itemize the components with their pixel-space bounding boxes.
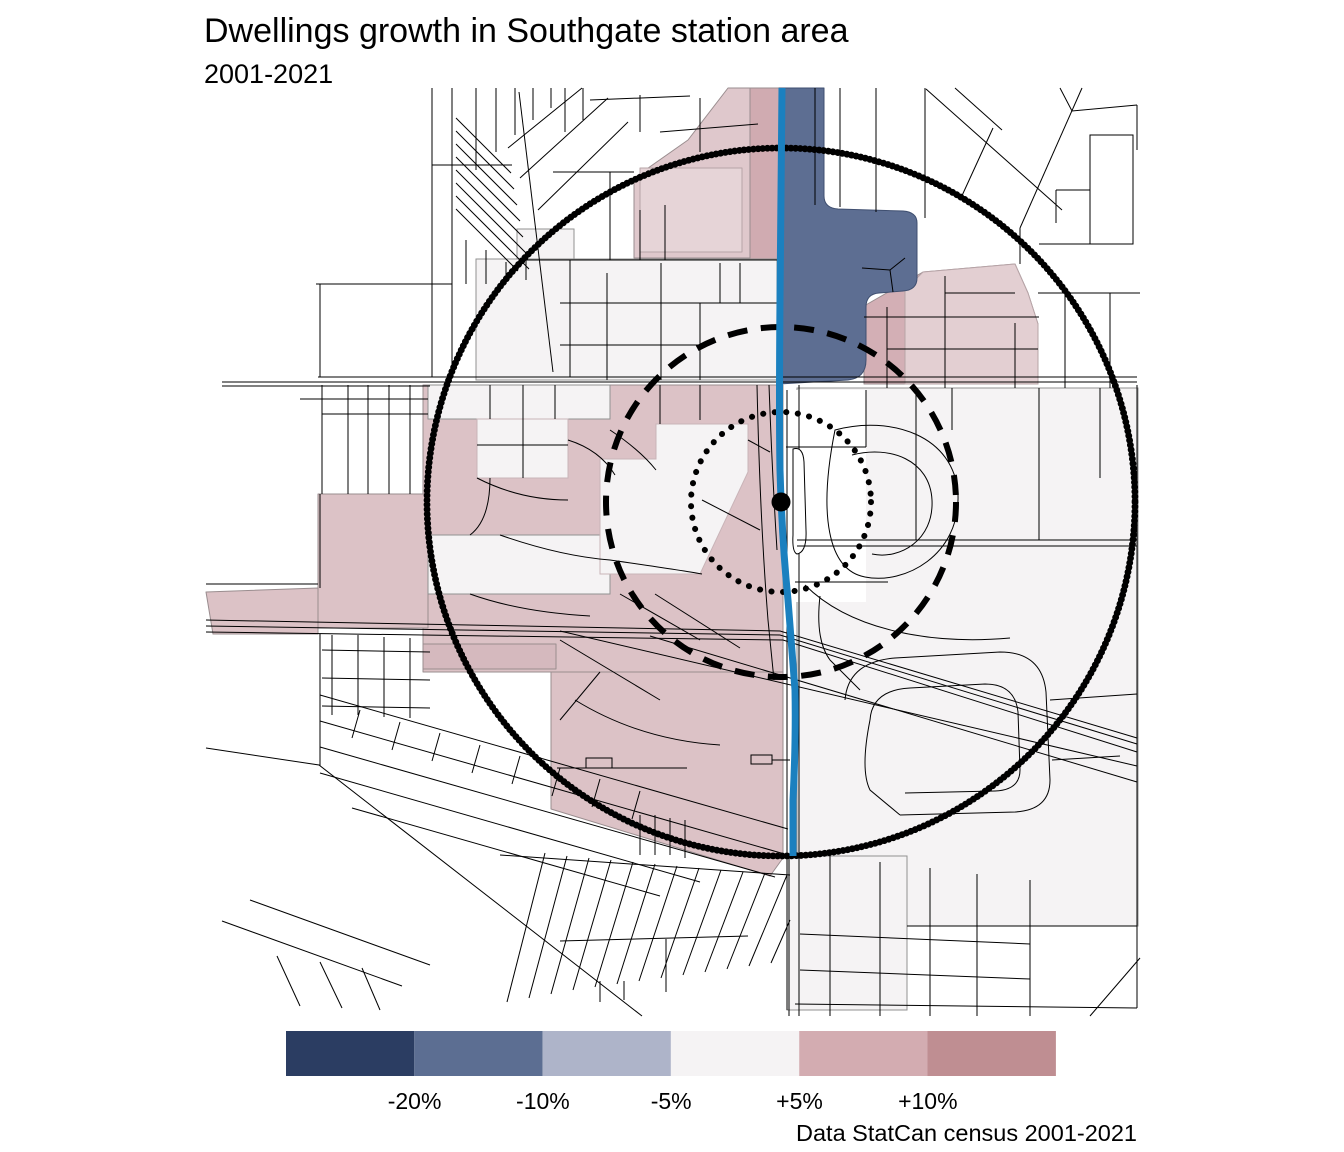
svg-text:2001-2021: 2001-2021 <box>204 59 333 89</box>
svg-text:+5%: +5% <box>776 1088 823 1114</box>
svg-text:Dwellings growth in Southgate: Dwellings growth in Southgate station ar… <box>204 12 849 50</box>
svg-text:-20%: -20% <box>388 1088 442 1114</box>
svg-text:-10%: -10% <box>516 1088 570 1114</box>
svg-text:+10%: +10% <box>898 1088 957 1114</box>
svg-text:-5%: -5% <box>651 1088 692 1114</box>
svg-text:Data StatCan census 2001-2021: Data StatCan census 2001-2021 <box>796 1120 1137 1146</box>
